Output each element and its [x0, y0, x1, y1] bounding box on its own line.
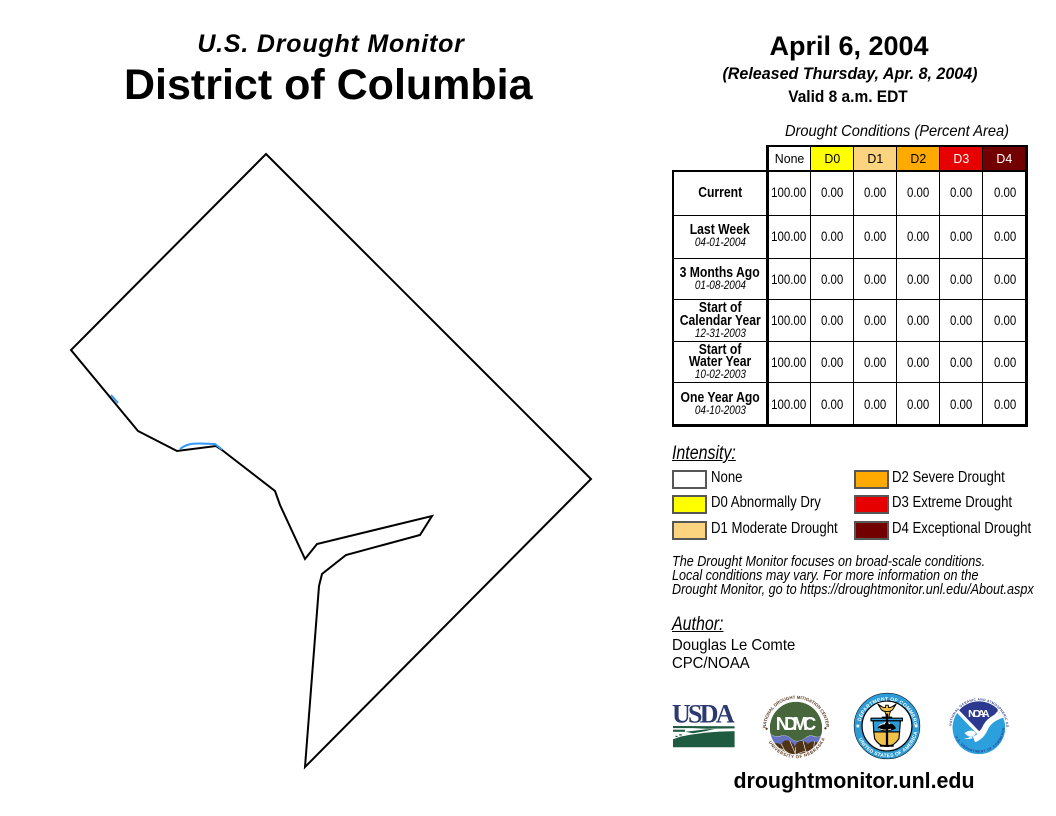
- svg-text:NDMC: NDMC: [776, 713, 817, 734]
- svg-text:USDA: USDA: [672, 700, 735, 729]
- svg-text:NOAA: NOAA: [968, 708, 990, 720]
